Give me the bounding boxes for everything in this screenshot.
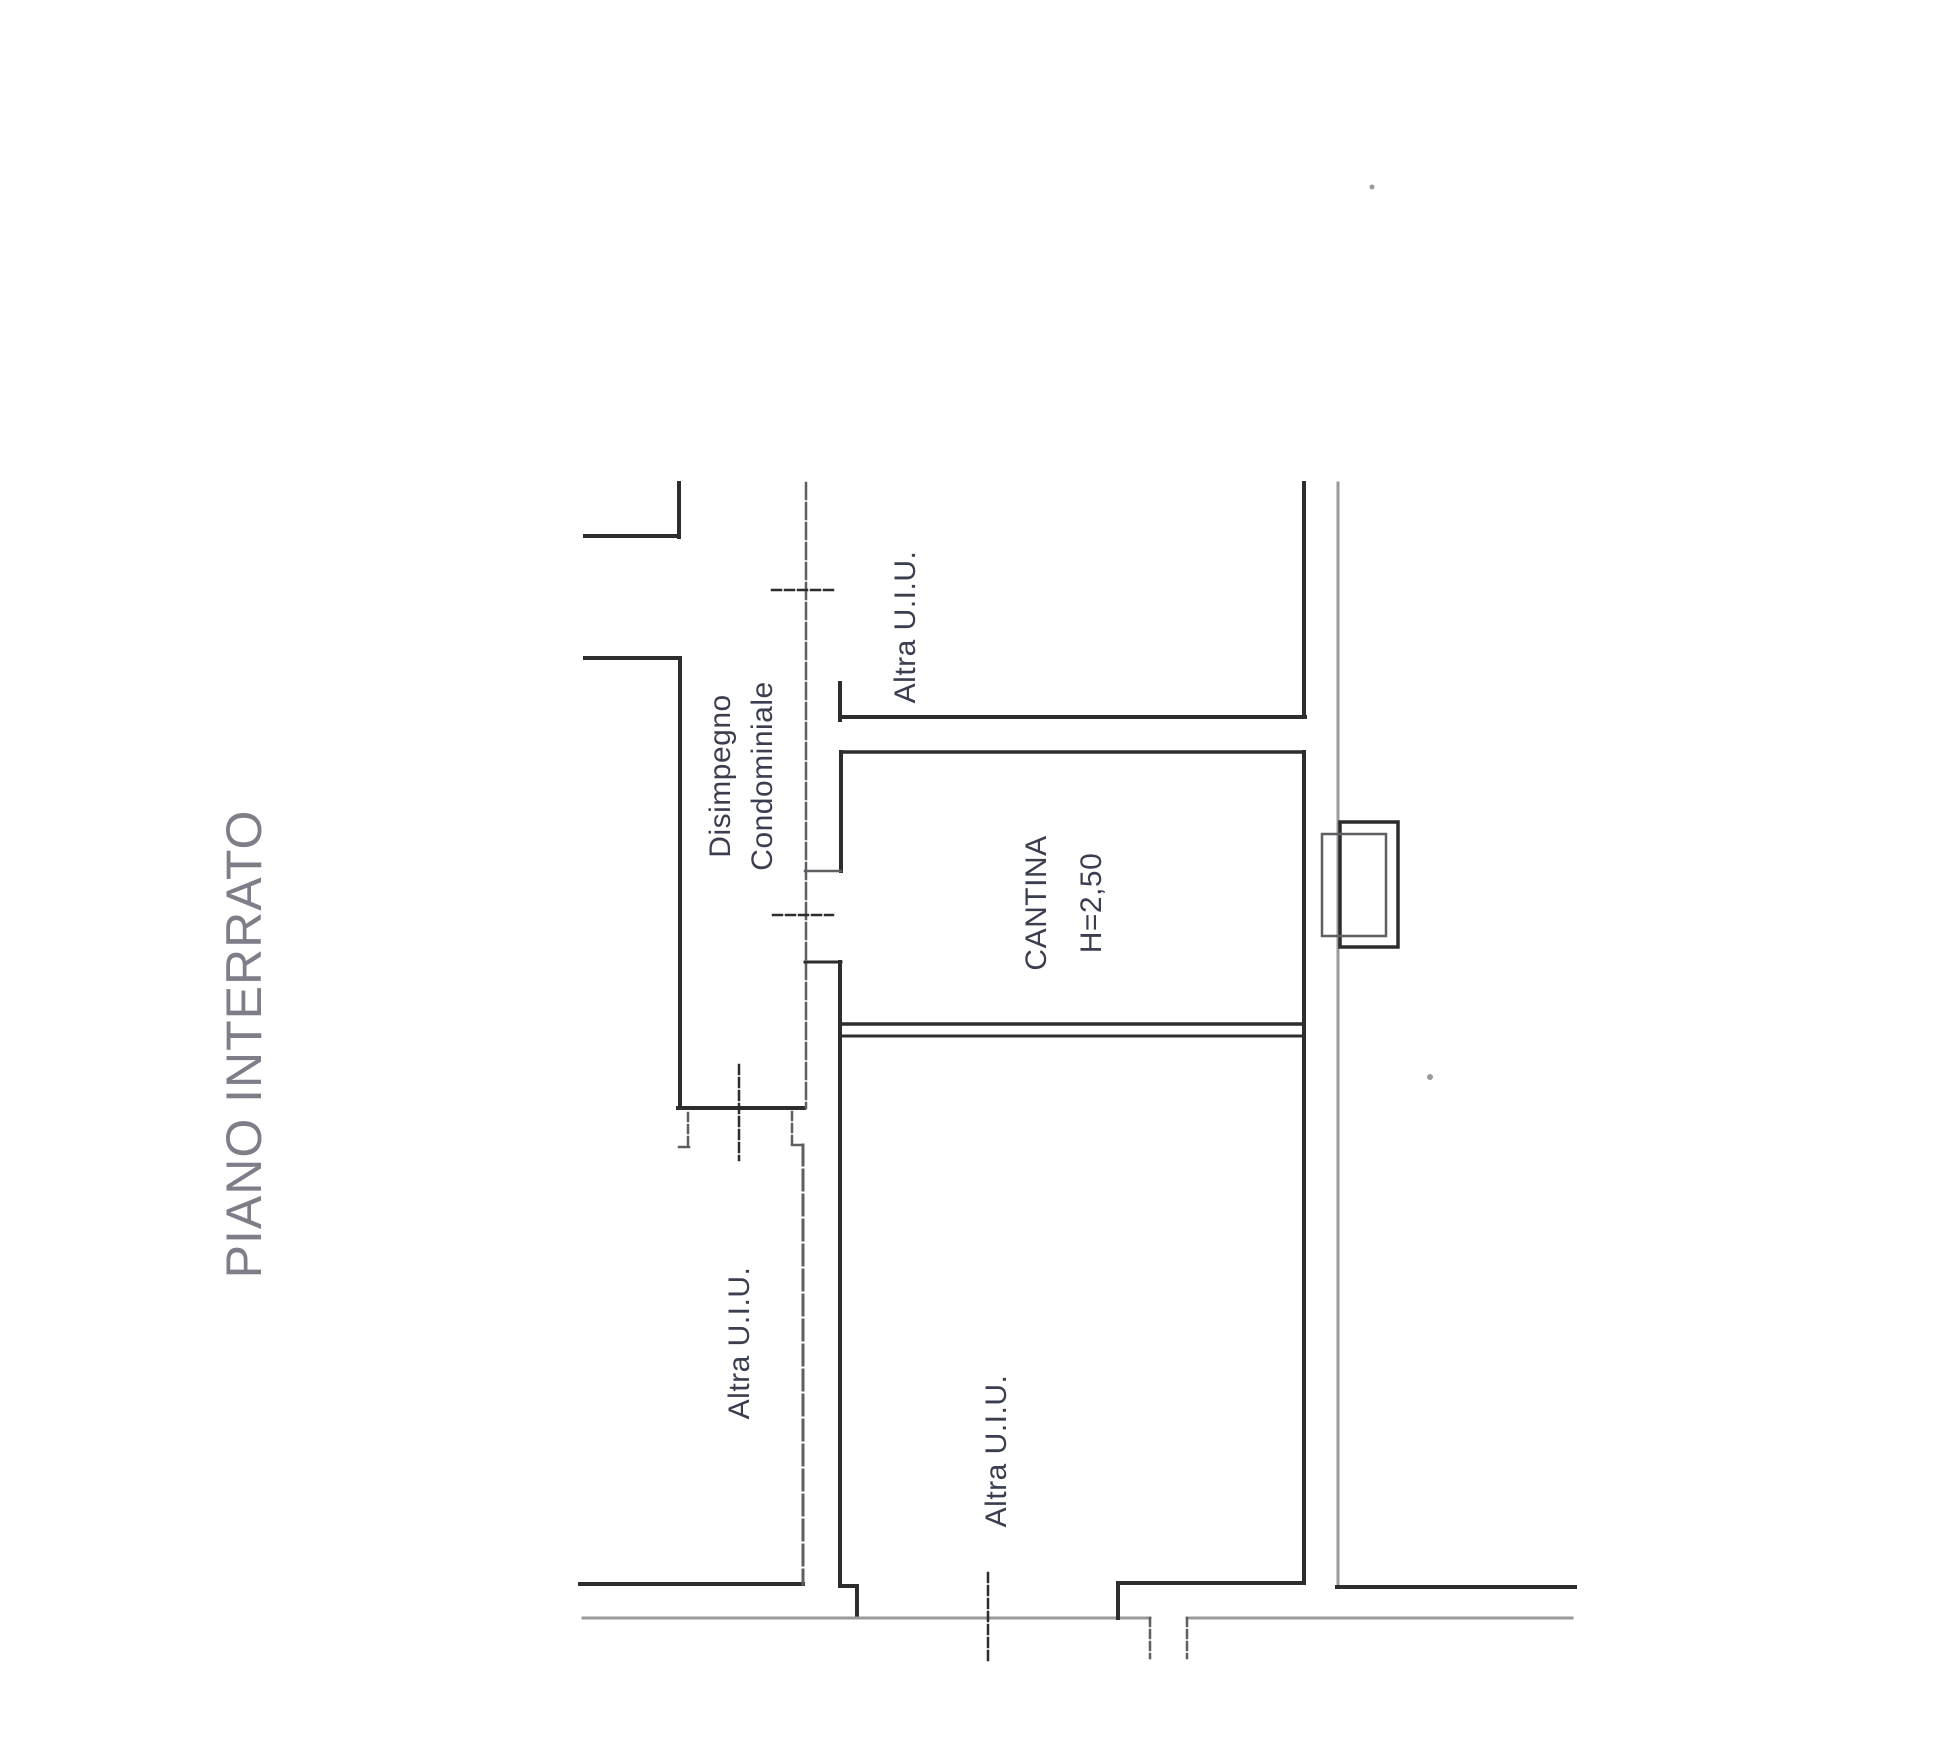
- cantina-room-height: H=2,50: [1064, 835, 1119, 970]
- cantina-room-name: CANTINA: [1009, 835, 1064, 970]
- corridor-label: Disimpegno Condominiale: [700, 681, 784, 870]
- lightwell-outer-box: [1340, 822, 1398, 947]
- floor-title-label: PIANO INTERRATO: [215, 810, 273, 1279]
- floor-plan-sheet: PIANO INTERRATO Disimpegno Condominiale …: [0, 0, 1943, 1762]
- corridor-label-line2: Condominiale: [742, 681, 784, 870]
- unit-left-label: Altra U.I.U.: [723, 1267, 757, 1420]
- lightwell-inner-box: [1322, 834, 1386, 936]
- floor-plan-drawing: [0, 0, 1943, 1762]
- cantina-room-label: CANTINA H=2,50: [1009, 835, 1119, 970]
- scan-speck-top: [1370, 185, 1375, 190]
- unit-top-label: Altra U.I.U.: [889, 551, 923, 704]
- unit-bottom-label: Altra U.I.U.: [980, 1375, 1014, 1528]
- scan-speck-right: [1427, 1074, 1433, 1080]
- corridor-label-line1: Disimpegno: [700, 681, 742, 870]
